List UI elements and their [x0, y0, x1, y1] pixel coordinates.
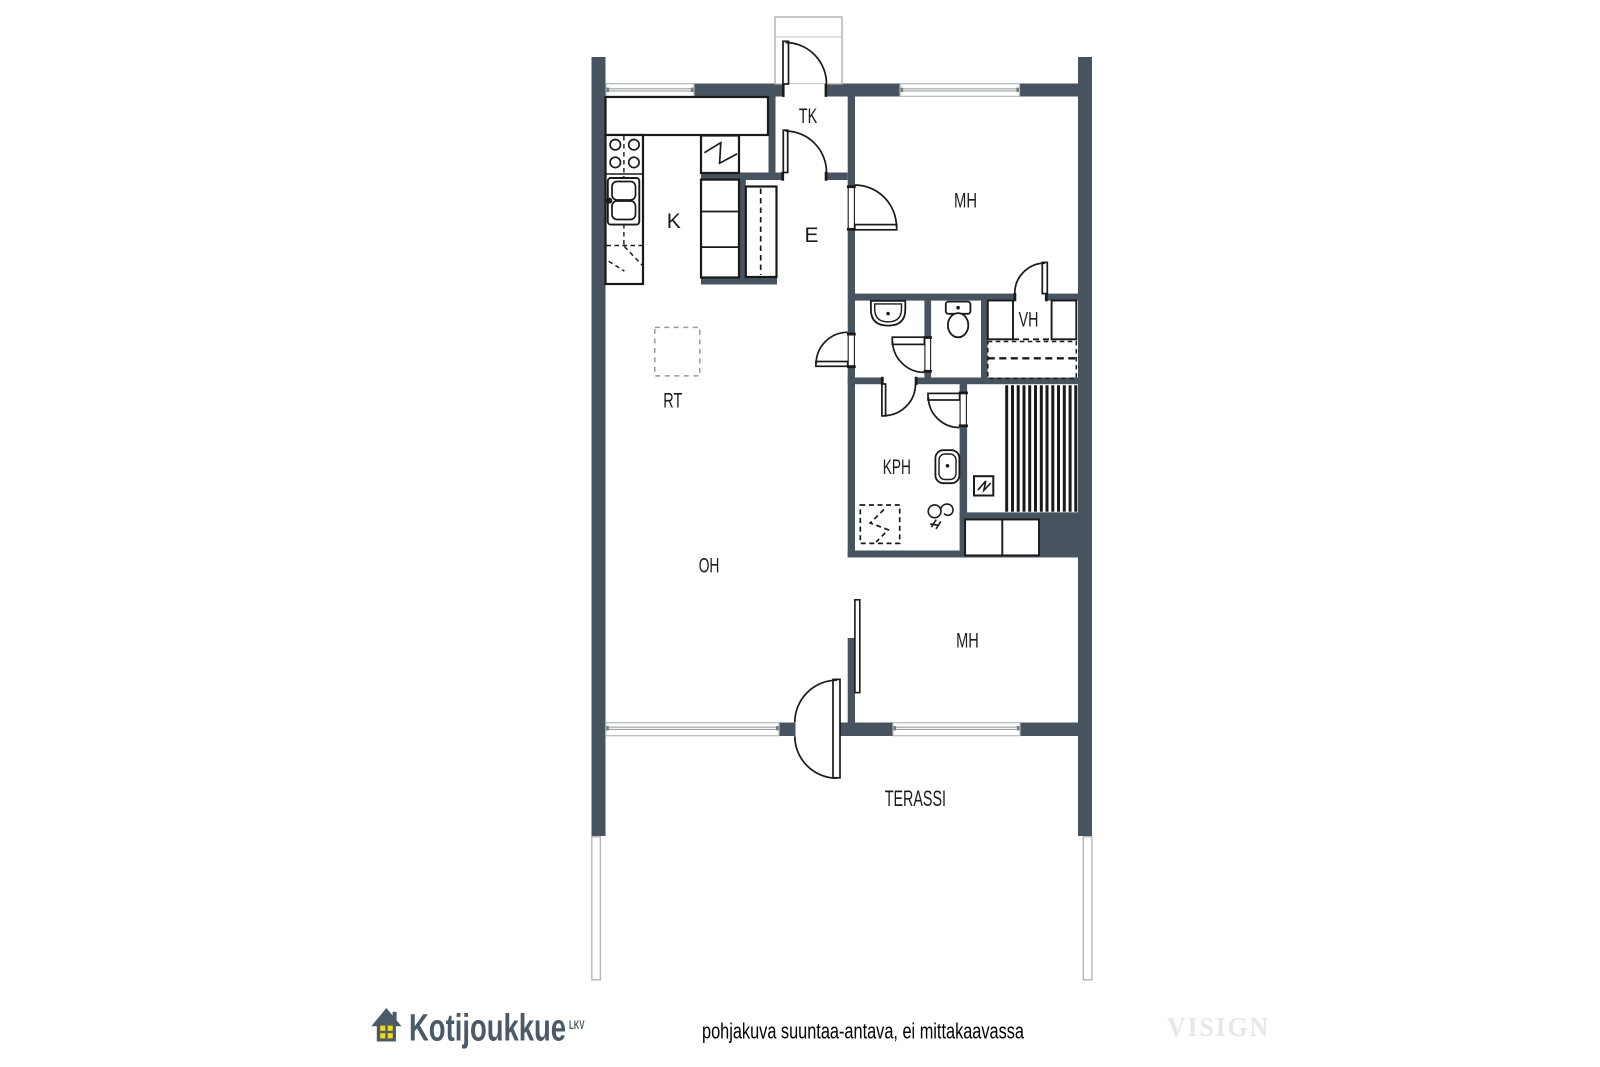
svg-text:K: K [667, 210, 681, 233]
svg-text:LKV: LKV [569, 1020, 585, 1032]
svg-text:VH: VH [1019, 309, 1039, 332]
svg-text:E: E [805, 224, 819, 247]
svg-text:Kotijoukkue: Kotijoukkue [409, 1008, 566, 1050]
svg-text:KPH: KPH [883, 456, 911, 479]
svg-text:MH: MH [956, 629, 979, 652]
svg-text:MH: MH [954, 190, 977, 213]
svg-text:RT: RT [663, 390, 682, 413]
svg-text:TERASSI: TERASSI [885, 786, 946, 811]
svg-text:OH: OH [699, 555, 720, 578]
svg-text:pohjakuva suuntaa-antava, ei m: pohjakuva suuntaa-antava, ei mittakaavas… [702, 1018, 1025, 1043]
svg-text:VISIGN: VISIGN [1167, 1012, 1270, 1042]
svg-text:TK: TK [799, 105, 817, 128]
